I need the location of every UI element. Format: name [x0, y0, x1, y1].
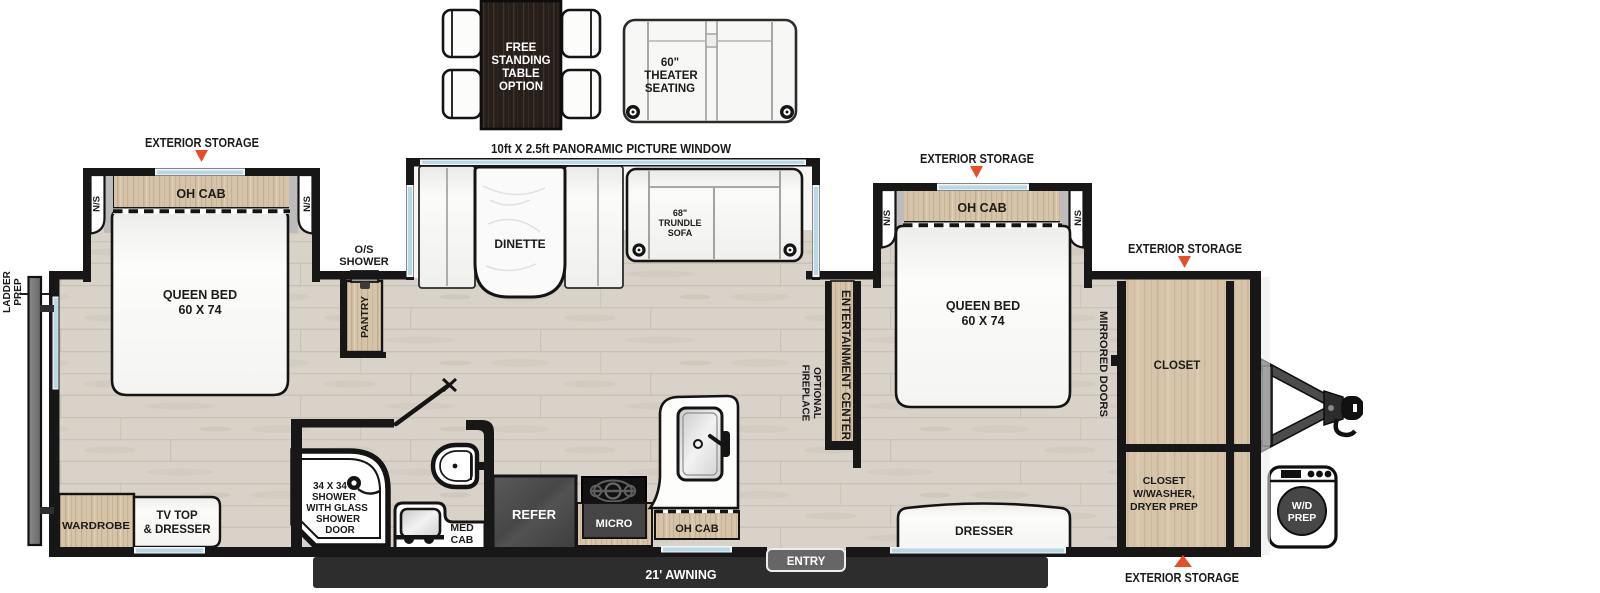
- svg-text:MIRRORED DOORS: MIRRORED DOORS: [1097, 311, 1109, 417]
- svg-text:N/S: N/S: [1073, 210, 1084, 226]
- svg-text:PREP: PREP: [1288, 512, 1317, 524]
- svg-text:REFER: REFER: [512, 507, 557, 522]
- svg-text:ENTERTAINMENT CENTER: ENTERTAINMENT CENTER: [839, 290, 851, 441]
- svg-text:QUEEN BED: QUEEN BED: [946, 299, 1020, 313]
- svg-text:OH CAB: OH CAB: [675, 523, 718, 535]
- svg-text:60": 60": [661, 57, 679, 69]
- svg-text:EXTERIOR STORAGE: EXTERIOR STORAGE: [920, 151, 1034, 166]
- svg-text:WARDROBE: WARDROBE: [62, 520, 130, 532]
- svg-text:SHOWER: SHOWER: [312, 492, 356, 503]
- svg-text:TABLE: TABLE: [502, 68, 540, 80]
- svg-text:DINETTE: DINETTE: [494, 237, 545, 251]
- svg-text:DOOR: DOOR: [325, 525, 354, 536]
- svg-text:EXTERIOR STORAGE: EXTERIOR STORAGE: [1125, 570, 1239, 585]
- svg-text:N/S: N/S: [302, 196, 313, 212]
- svg-text:FREE: FREE: [506, 42, 537, 54]
- svg-text:CLOSET: CLOSET: [1154, 360, 1201, 372]
- svg-text:TV TOP: TV TOP: [156, 510, 198, 522]
- svg-text:DRESSER: DRESSER: [955, 524, 1013, 538]
- svg-text:21' AWNING: 21' AWNING: [645, 568, 716, 582]
- svg-text:& DRESSER: & DRESSER: [143, 524, 211, 536]
- svg-text:SHOWER: SHOWER: [316, 514, 360, 525]
- svg-text:EXTERIOR STORAGE: EXTERIOR STORAGE: [145, 135, 259, 150]
- svg-text:34 X 34: 34 X 34: [313, 481, 347, 492]
- svg-text:60 X 74: 60 X 74: [961, 314, 1004, 328]
- svg-text:THEATER: THEATER: [644, 70, 698, 82]
- svg-text:68": 68": [673, 208, 687, 218]
- svg-text:O/S: O/S: [355, 244, 374, 256]
- svg-text:CLOSET: CLOSET: [1143, 475, 1186, 487]
- svg-text:W/D: W/D: [1292, 500, 1313, 512]
- svg-text:QUEEN BED: QUEEN BED: [163, 288, 237, 302]
- svg-text:CAB: CAB: [451, 534, 474, 546]
- svg-text:10ft X 2.5ft PANORAMIC PICTURE: 10ft X 2.5ft PANORAMIC PICTURE WINDOW: [491, 142, 731, 156]
- svg-text:STANDING: STANDING: [491, 55, 550, 67]
- svg-text:MED: MED: [450, 522, 474, 534]
- svg-text:N/S: N/S: [92, 196, 103, 212]
- svg-text:OPTIONALFIREPLACE: OPTIONALFIREPLACE: [800, 365, 823, 422]
- svg-text:MICRO: MICRO: [596, 518, 633, 530]
- svg-text:SHOWER: SHOWER: [339, 256, 389, 268]
- svg-text:SOFA: SOFA: [668, 228, 693, 238]
- svg-text:EXTERIOR STORAGE: EXTERIOR STORAGE: [1128, 241, 1242, 256]
- svg-text:ENTRY: ENTRY: [787, 556, 826, 568]
- svg-text:60 X 74: 60 X 74: [178, 303, 221, 317]
- svg-text:OH CAB: OH CAB: [957, 201, 1006, 215]
- svg-text:PANTRY: PANTRY: [359, 296, 371, 338]
- svg-text:TRUNDLE: TRUNDLE: [659, 218, 702, 228]
- svg-text:SEATING: SEATING: [645, 83, 695, 95]
- svg-text:OPTION: OPTION: [499, 81, 543, 93]
- svg-text:DRYER PREP: DRYER PREP: [1130, 501, 1198, 513]
- svg-text:OH CAB: OH CAB: [176, 187, 225, 201]
- svg-text:W/WASHER,: W/WASHER,: [1133, 488, 1195, 500]
- svg-text:N/S: N/S: [882, 210, 893, 226]
- svg-text:WITH GLASS: WITH GLASS: [306, 503, 368, 514]
